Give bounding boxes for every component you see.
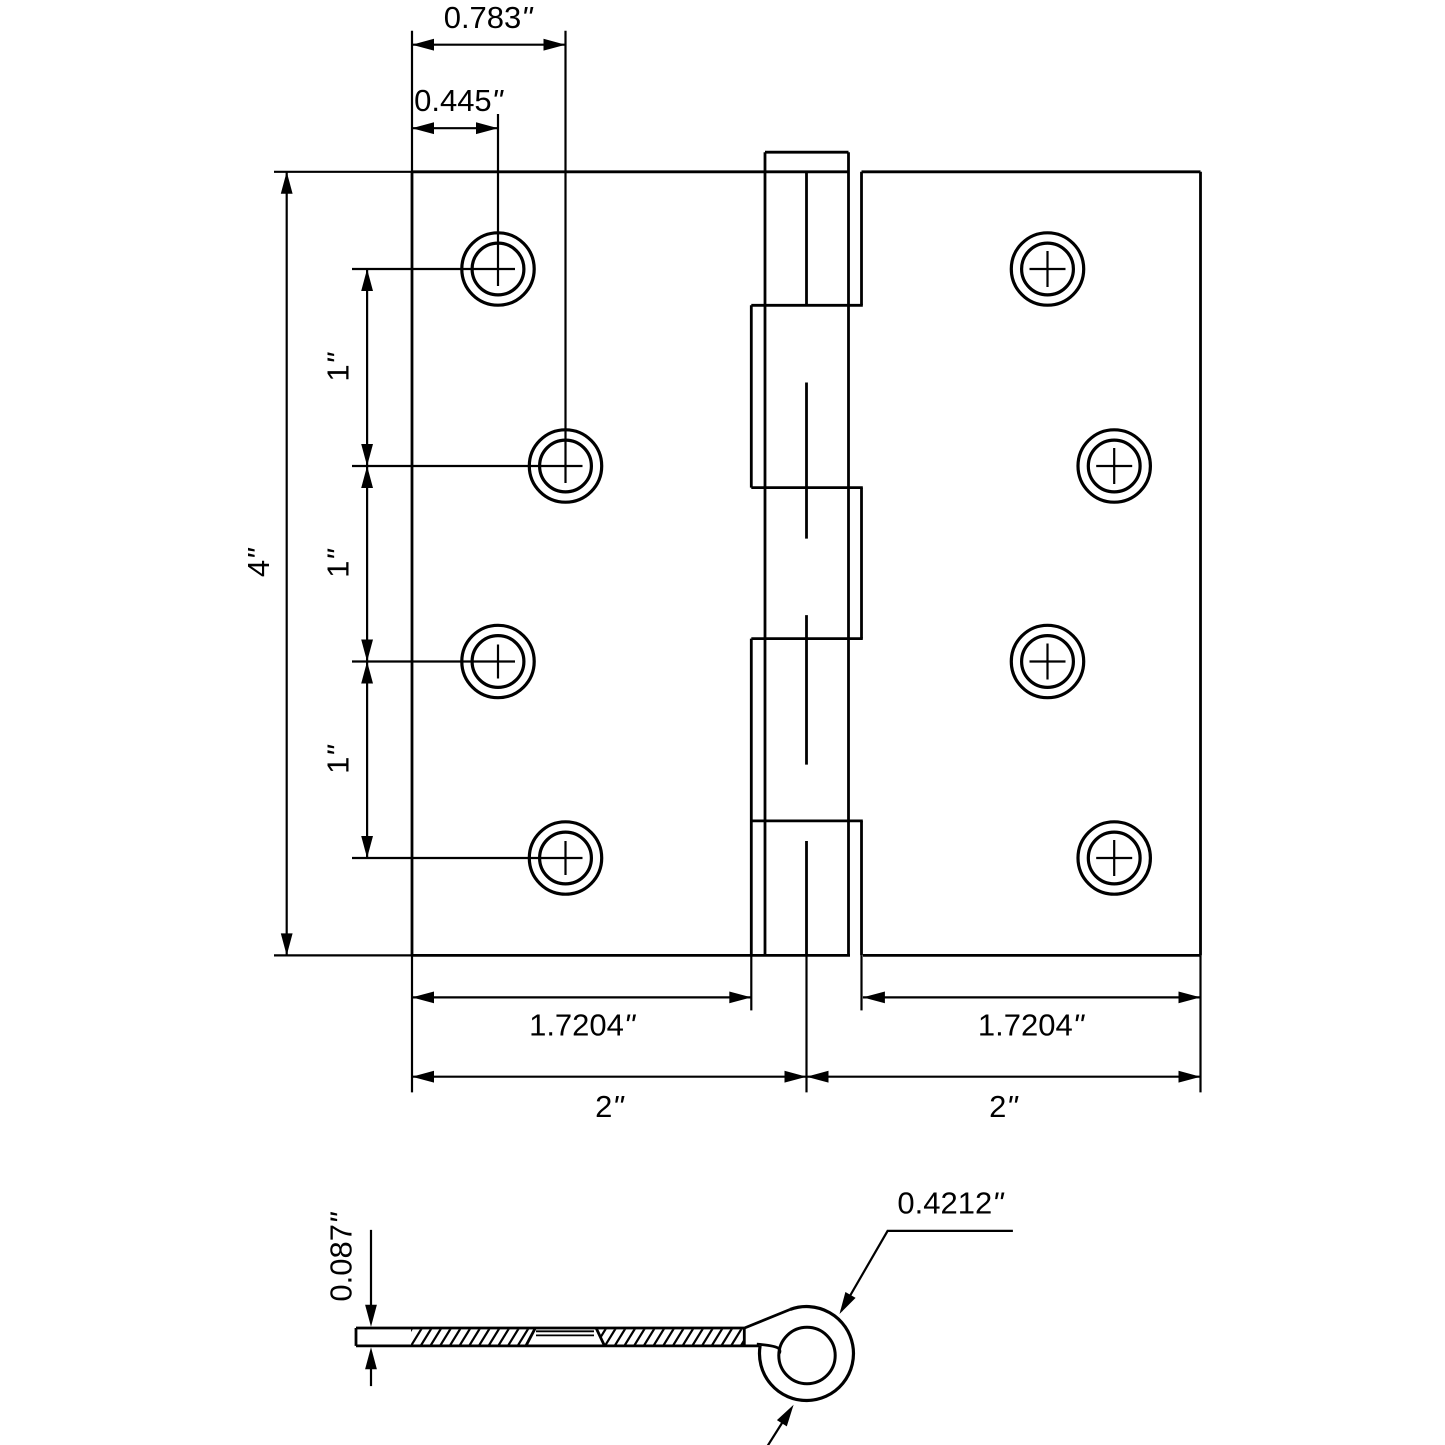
svg-text:4": 4" [241,547,276,577]
svg-text:1": 1" [321,548,356,578]
svg-text:2": 2" [989,1089,1019,1124]
svg-text:0.445": 0.445" [414,83,505,118]
svg-text:1": 1" [321,351,356,381]
svg-text:0.087": 0.087" [324,1211,359,1302]
svg-text:1": 1" [321,744,356,774]
svg-text:0.4212": 0.4212" [897,1186,1005,1221]
svg-text:1.7204": 1.7204" [529,1008,637,1043]
svg-text:1.7204": 1.7204" [978,1008,1086,1043]
svg-text:0.783": 0.783" [444,0,535,35]
svg-text:2": 2" [595,1089,625,1124]
